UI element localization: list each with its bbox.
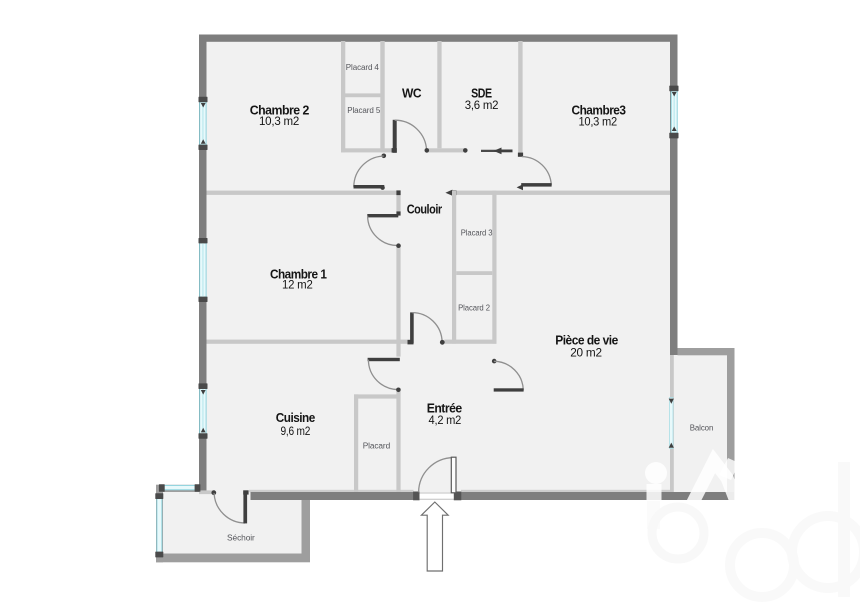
svg-text:10,3 m2: 10,3 m2 <box>578 115 617 129</box>
svg-text:20 m2: 20 m2 <box>570 346 602 360</box>
svg-text:Couloir: Couloir <box>407 202 442 217</box>
svg-text:Balcon: Balcon <box>690 422 714 432</box>
svg-text:Placard 2: Placard 2 <box>458 303 490 313</box>
svg-text:4,2 m2: 4,2 m2 <box>429 413 462 427</box>
svg-text:10,3 m2: 10,3 m2 <box>259 114 300 128</box>
svg-text:Placard: Placard <box>363 441 391 451</box>
svg-text:WC: WC <box>402 86 422 101</box>
svg-text:12 m2: 12 m2 <box>282 278 313 292</box>
svg-text:Placard 5: Placard 5 <box>347 105 380 115</box>
svg-text:Séchoir: Séchoir <box>227 532 255 542</box>
svg-text:Placard 4: Placard 4 <box>346 62 379 72</box>
svg-text:Placard 3: Placard 3 <box>461 228 493 238</box>
svg-text:9,6 m2: 9,6 m2 <box>280 424 310 438</box>
svg-text:Cuisine: Cuisine <box>276 410 315 425</box>
svg-text:3,6 m2: 3,6 m2 <box>465 98 499 112</box>
